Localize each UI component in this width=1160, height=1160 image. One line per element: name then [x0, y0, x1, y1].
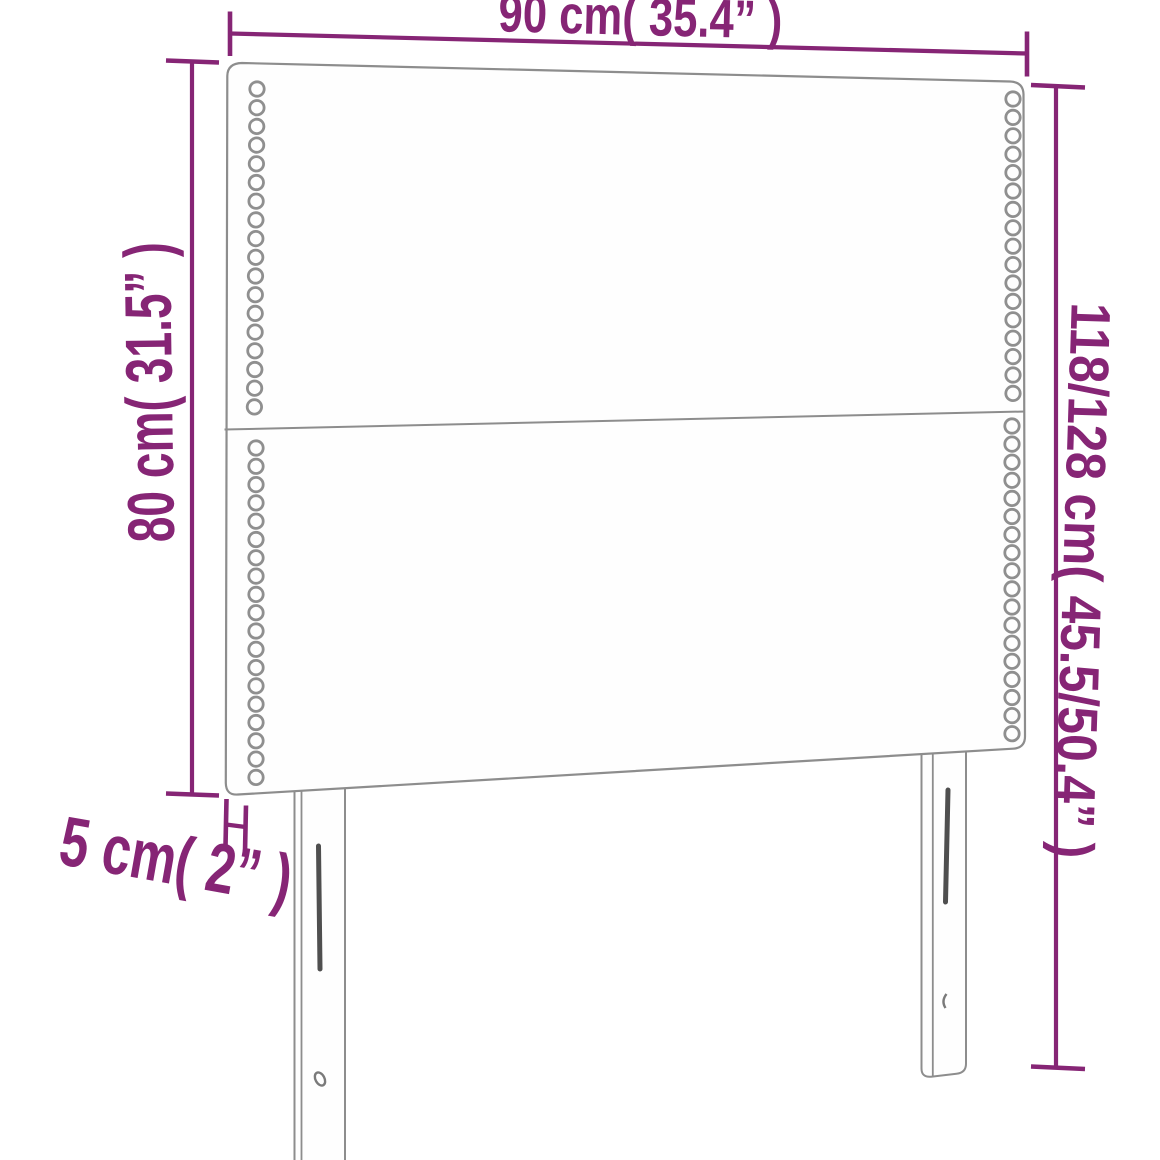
- upholstery-stud: [249, 231, 263, 245]
- upholstery-stud: [250, 82, 264, 96]
- upholstery-stud: [1005, 437, 1019, 451]
- upholstery-stud: [247, 400, 261, 414]
- depth-dimension: 5 cm( 2” ): [54, 799, 298, 919]
- panel-height-dimension-label: 80 cm( 31.5” ): [110, 242, 188, 543]
- upholstery-stud: [249, 734, 263, 748]
- upholstery-stud: [1006, 313, 1020, 327]
- total-height-top-tick: [1031, 85, 1085, 88]
- upholstery-stud: [1005, 564, 1019, 578]
- total-height-dimension: 118/128 cm( 45.5/50.4” ): [1031, 85, 1123, 1069]
- upholstery-stud: [249, 770, 263, 784]
- upholstery-stud: [248, 269, 262, 283]
- upholstery-stud: [248, 306, 262, 320]
- upholstery-stud: [1005, 727, 1019, 741]
- upholstery-stud: [249, 715, 263, 729]
- upholstery-stud: [247, 381, 261, 395]
- upholstery-stud: [1006, 239, 1020, 253]
- width-dimension-label: 90 cm( 35.4” ): [498, 0, 783, 51]
- upholstery-stud: [1006, 92, 1020, 106]
- upholstery-stud: [1006, 257, 1020, 271]
- upholstery-stud: [1005, 636, 1019, 650]
- depth-dimension-label: 5 cm( 2” ): [54, 802, 298, 919]
- upholstery-stud: [1005, 455, 1019, 469]
- upholstery-stud: [1006, 129, 1020, 143]
- upholstery-stud: [1006, 184, 1020, 198]
- total-height-bottom-tick: [1031, 1067, 1085, 1070]
- upholstery-stud: [1005, 527, 1019, 541]
- stud-column-upper-right: [1006, 92, 1020, 401]
- upholstery-stud: [249, 551, 263, 565]
- upholstery-stud: [1006, 294, 1020, 308]
- right-leg: [922, 743, 967, 1077]
- upholstery-stud: [1005, 618, 1019, 632]
- upholstery-stud: [248, 325, 262, 339]
- upholstery-stud: [248, 344, 262, 358]
- right-leg-slot: [946, 790, 949, 902]
- upholstery-stud: [249, 587, 263, 601]
- upholstery-stud: [249, 569, 263, 583]
- upholstery-stud: [1005, 708, 1019, 722]
- upholstery-stud: [249, 477, 263, 491]
- upholstery-stud: [1005, 672, 1019, 686]
- headboard-dimension-diagram: 90 cm( 35.4” ) 80 cm( 31.5” ) 118/128 cm…: [0, 0, 1160, 1160]
- upholstery-stud: [250, 119, 264, 133]
- right-leg-body: [922, 743, 967, 1077]
- upholstery-stud: [249, 624, 263, 638]
- upholstery-stud: [1005, 600, 1019, 614]
- depth-connector-line: [226, 825, 246, 828]
- upholstery-stud: [1006, 349, 1020, 363]
- panel-height-dimension: 80 cm( 31.5” ): [110, 61, 219, 796]
- upholstery-stud: [1006, 276, 1020, 290]
- upholstery-stud: [249, 532, 263, 546]
- panel-height-bottom-tick: [166, 794, 219, 796]
- upholstery-stud: [248, 362, 262, 376]
- upholstery-stud: [1006, 165, 1020, 179]
- upholstery-stud: [249, 157, 263, 171]
- upholstery-stud: [249, 514, 263, 528]
- left-leg-slot: [319, 846, 321, 969]
- upholstery-stud: [249, 213, 263, 227]
- diagram-canvas: 90 cm( 35.4” ) 80 cm( 31.5” ) 118/128 cm…: [0, 0, 1160, 1160]
- upholstery-stud: [249, 679, 263, 693]
- upholstery-stud: [250, 101, 264, 115]
- upholstery-stud: [249, 697, 263, 711]
- upholstery-stud: [1006, 221, 1020, 235]
- upholstery-stud: [1006, 331, 1020, 345]
- upholstery-stud: [1005, 654, 1019, 668]
- upholstery-stud: [1005, 582, 1019, 596]
- upholstery-stud: [1005, 509, 1019, 523]
- upholstery-stud: [1006, 202, 1020, 216]
- upholstery-stud: [248, 288, 262, 302]
- headboard-outline: [226, 63, 1025, 795]
- panel-height-top-tick: [166, 61, 219, 63]
- upholstery-stud: [249, 752, 263, 766]
- upholstery-stud: [249, 250, 263, 264]
- upholstery-stud: [249, 138, 263, 152]
- upholstery-stud: [1006, 368, 1020, 382]
- upholstery-stud: [1006, 386, 1020, 400]
- upholstery-stud: [249, 459, 263, 473]
- upholstery-stud: [1005, 473, 1019, 487]
- upholstery-stud: [249, 660, 263, 674]
- upholstery-stud: [1005, 419, 1019, 433]
- upholstery-stud: [249, 606, 263, 620]
- headboard: [225, 63, 1026, 795]
- upholstery-stud: [1006, 110, 1020, 124]
- upholstery-stud: [1005, 546, 1019, 560]
- upholstery-stud: [249, 496, 263, 510]
- upholstery-stud: [1005, 491, 1019, 505]
- upholstery-stud: [1006, 147, 1020, 161]
- upholstery-stud: [249, 175, 263, 189]
- upholstery-stud: [249, 194, 263, 208]
- upholstery-stud: [249, 642, 263, 656]
- upholstery-stud: [249, 441, 263, 455]
- upholstery-stud: [1005, 690, 1019, 704]
- left-leg: [295, 784, 346, 1160]
